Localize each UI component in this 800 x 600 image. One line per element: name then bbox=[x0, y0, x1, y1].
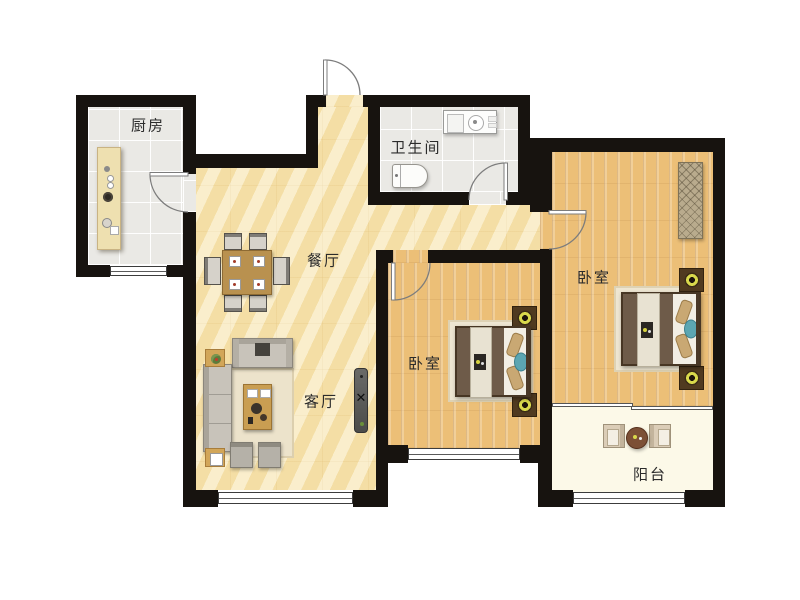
speaker-icon bbox=[360, 375, 363, 378]
balcony-label: 阳台 bbox=[633, 464, 667, 485]
wall bbox=[183, 212, 196, 507]
wall bbox=[376, 445, 408, 463]
dining-chair bbox=[273, 257, 290, 285]
balcony-sliding-door bbox=[552, 403, 633, 407]
bedroom-middle-threshold bbox=[393, 250, 428, 263]
cutting-board-icon bbox=[110, 226, 119, 235]
bedroom-right-label: 卧室 bbox=[577, 267, 611, 288]
bedroom-right-threshold bbox=[540, 212, 552, 249]
flush-button-icon bbox=[395, 174, 398, 177]
dining-chair bbox=[249, 233, 267, 250]
dot-icon bbox=[481, 362, 484, 365]
vanity-cabinet bbox=[447, 114, 464, 133]
dining-chair bbox=[249, 295, 267, 312]
bedroom-middle-window bbox=[408, 448, 520, 460]
bed-tray-icon bbox=[474, 354, 486, 370]
kitchen-door-threshold bbox=[183, 174, 196, 212]
wall bbox=[368, 192, 469, 205]
wall bbox=[713, 138, 725, 507]
wall bbox=[376, 263, 388, 507]
remote-icon bbox=[248, 417, 253, 424]
lamp-icon bbox=[517, 398, 532, 413]
bathroom-door-threshold bbox=[469, 192, 506, 205]
wall bbox=[76, 95, 88, 277]
faucet-icon bbox=[473, 120, 477, 124]
sofa-armrest bbox=[233, 339, 239, 367]
cushion-seam bbox=[209, 423, 231, 424]
sofa-cushion bbox=[255, 343, 270, 356]
ottoman bbox=[258, 442, 281, 468]
living-room-window bbox=[218, 492, 353, 504]
lamp-icon bbox=[684, 273, 699, 288]
placemat-icon bbox=[229, 256, 241, 267]
wall bbox=[428, 250, 552, 263]
wall bbox=[530, 150, 552, 212]
side-table bbox=[205, 448, 225, 467]
toilet bbox=[392, 164, 428, 188]
wall bbox=[195, 154, 318, 168]
balcony-table bbox=[626, 427, 648, 449]
chaise-sofa bbox=[203, 364, 232, 452]
dot-icon bbox=[633, 435, 637, 439]
sink-icon bbox=[107, 182, 114, 189]
chair-cushion bbox=[607, 429, 619, 446]
wall bbox=[76, 265, 110, 277]
nightstand bbox=[679, 366, 704, 390]
entry-door-leaf bbox=[324, 60, 328, 95]
headboard bbox=[526, 328, 529, 395]
kitchen-window bbox=[110, 266, 167, 276]
tray-icon bbox=[260, 389, 271, 398]
placemat-icon bbox=[253, 279, 265, 290]
double-bed bbox=[455, 326, 531, 397]
wall bbox=[538, 490, 573, 507]
balcony-window bbox=[573, 492, 685, 504]
placemat-icon bbox=[253, 256, 265, 267]
ottoman bbox=[230, 442, 253, 468]
headboard bbox=[696, 294, 699, 364]
sink-icon bbox=[107, 175, 114, 182]
book-icon bbox=[210, 453, 223, 466]
teapot-icon bbox=[251, 403, 262, 414]
coffee-table bbox=[243, 384, 272, 430]
lamp-icon bbox=[517, 311, 532, 326]
wall bbox=[306, 95, 326, 107]
chair-cushion bbox=[658, 429, 670, 446]
cushion-seam bbox=[209, 394, 231, 395]
towel-icon bbox=[488, 116, 497, 122]
dot-icon bbox=[648, 330, 651, 333]
balcony-sliding-door bbox=[631, 406, 713, 410]
wall bbox=[76, 95, 196, 107]
dining-chair bbox=[204, 257, 221, 285]
entry-door-arc bbox=[325, 60, 360, 95]
kitchen-counter bbox=[97, 147, 121, 250]
dining-chair bbox=[224, 233, 242, 250]
wall bbox=[540, 249, 552, 455]
dot-icon bbox=[643, 328, 647, 332]
bedroom-middle-label: 卧室 bbox=[408, 353, 442, 374]
dining-table bbox=[222, 250, 272, 295]
faucet-icon bbox=[104, 166, 110, 172]
sofa-back bbox=[204, 365, 209, 451]
cup-icon bbox=[260, 414, 267, 421]
bathroom-label: 卫生间 bbox=[390, 137, 441, 158]
plant-icon bbox=[360, 422, 364, 426]
stove-burner-icon bbox=[103, 192, 113, 202]
wall bbox=[183, 490, 218, 507]
double-bed bbox=[621, 292, 701, 366]
towel-icon bbox=[488, 123, 497, 128]
entry-threshold bbox=[326, 95, 363, 107]
bathroom-vanity bbox=[443, 110, 497, 134]
wall bbox=[376, 250, 393, 263]
flower-icon bbox=[215, 358, 218, 361]
tv-icon: ✕ bbox=[355, 391, 367, 404]
living-label: 客厅 bbox=[304, 391, 338, 412]
bed-tray-icon bbox=[641, 322, 653, 338]
wardrobe bbox=[678, 162, 703, 239]
sofa-armrest bbox=[286, 339, 292, 367]
wall bbox=[363, 95, 530, 107]
toilet-tank bbox=[400, 165, 401, 187]
dining-chair bbox=[224, 295, 242, 312]
sofa bbox=[232, 338, 293, 368]
lamp-icon bbox=[684, 371, 699, 386]
kitchen-label: 厨房 bbox=[131, 115, 165, 136]
tray-icon bbox=[247, 389, 258, 398]
dot-icon bbox=[476, 360, 480, 364]
balcony-chair bbox=[649, 424, 671, 448]
dining-label: 餐厅 bbox=[307, 250, 341, 271]
floor-plan: ✕ bbox=[0, 0, 800, 600]
tv-stand: ✕ bbox=[354, 368, 368, 433]
placemat-icon bbox=[229, 279, 241, 290]
wall bbox=[353, 490, 388, 507]
wall bbox=[368, 95, 380, 205]
dot-icon bbox=[639, 437, 642, 440]
balcony-chair bbox=[603, 424, 625, 448]
nightstand bbox=[679, 268, 704, 292]
wall bbox=[685, 490, 725, 507]
side-table bbox=[205, 349, 225, 367]
